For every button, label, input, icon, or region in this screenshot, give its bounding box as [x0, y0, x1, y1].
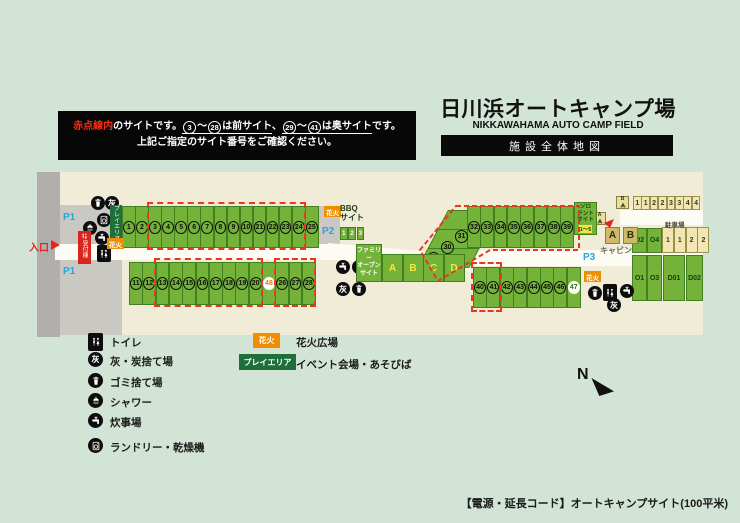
legend-fireworks-label: 花火広場	[296, 335, 338, 350]
legend-play-area-label: イベント会場・あそびば	[296, 357, 412, 372]
legend-fireworks-tag: 花火	[253, 333, 280, 348]
laundry-icon	[88, 438, 103, 453]
faucet-icon	[88, 413, 103, 428]
compass-north-label: N	[577, 366, 589, 384]
legend-play-area-tag: プレイエリア	[239, 354, 296, 370]
legend-label-1: トイレ	[110, 335, 142, 350]
footer-note: 【電源・延長コード】オートキャンプサイト(100平米)	[461, 495, 728, 511]
legend-label-2: 灰・炭捨て場	[110, 354, 173, 369]
wc-icon	[88, 333, 103, 351]
legend-label-5: 炊事場	[110, 415, 142, 430]
shower-icon	[88, 393, 103, 408]
campground-facility-map: 赤点線内のサイトです。3〜28は前サイト、29〜41は奥サイトです。 上記ご指定…	[0, 0, 740, 523]
trash-icon	[88, 373, 103, 388]
legend: トイレ灰灰・炭捨て場ゴミ捨て場シャワー炊事場ランドリー・乾燥機	[0, 0, 740, 523]
ash-icon: 灰	[88, 352, 103, 367]
legend-label-4: シャワー	[110, 395, 152, 410]
legend-label-3: ゴミ捨て場	[110, 375, 163, 390]
legend-label-6: ランドリー・乾燥機	[110, 440, 205, 455]
